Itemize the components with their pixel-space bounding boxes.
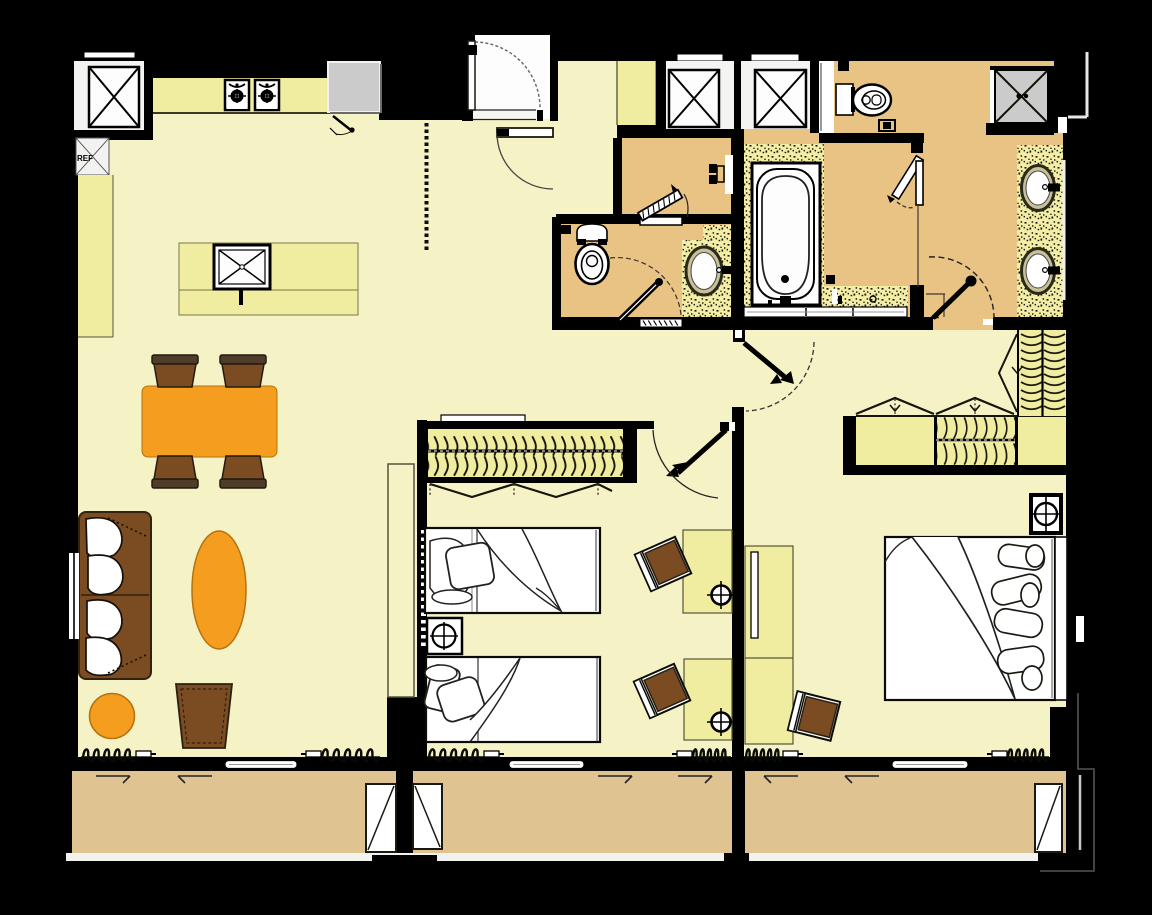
svg-text:REF: REF [77, 154, 93, 163]
